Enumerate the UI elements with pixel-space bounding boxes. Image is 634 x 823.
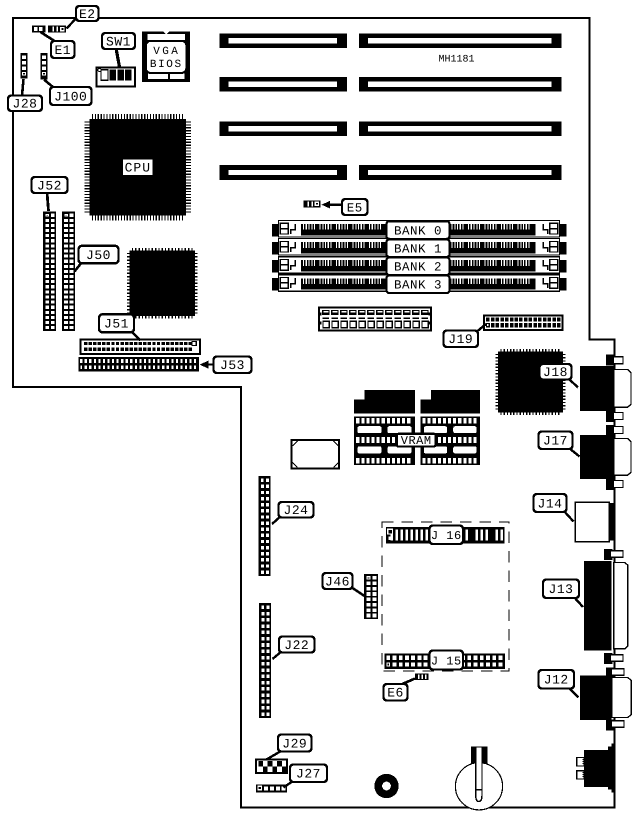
svg-text:BANK 0: BANK 0 (394, 224, 442, 238)
svg-text:J53: J53 (220, 358, 245, 373)
svg-text:E2: E2 (79, 7, 96, 22)
svg-text:E1: E1 (54, 43, 71, 58)
svg-text:J28: J28 (13, 97, 38, 112)
svg-text:J19: J19 (448, 332, 473, 347)
svg-text:J17: J17 (543, 434, 568, 449)
svg-text:J14: J14 (538, 496, 563, 511)
svg-text:J24: J24 (284, 503, 309, 518)
svg-text:J12: J12 (544, 673, 569, 688)
svg-text:J18: J18 (543, 365, 568, 380)
svg-text:CPU: CPU (125, 161, 151, 176)
svg-text:J100: J100 (54, 89, 87, 104)
svg-text:E5: E5 (347, 201, 363, 215)
svg-text:J51: J51 (104, 317, 129, 332)
svg-text:J52: J52 (37, 178, 62, 193)
svg-text:BANK 3: BANK 3 (394, 279, 442, 293)
svg-text:J 15: J 15 (431, 654, 462, 668)
svg-text:MH1181: MH1181 (438, 55, 474, 66)
svg-text:E6: E6 (387, 686, 404, 701)
svg-text:VGA: VGA (153, 46, 180, 58)
svg-text:VRAM: VRAM (401, 434, 432, 448)
svg-text:BANK 1: BANK 1 (394, 242, 442, 256)
svg-text:J50: J50 (86, 248, 111, 263)
svg-text:J46: J46 (325, 574, 350, 589)
svg-text:J13: J13 (549, 582, 574, 597)
svg-text:J29: J29 (282, 736, 307, 751)
svg-text:J22: J22 (284, 638, 309, 653)
svg-text:J27: J27 (296, 767, 321, 782)
svg-text:BANK 2: BANK 2 (394, 261, 442, 275)
svg-text:J 16: J 16 (431, 529, 462, 543)
svg-text:SW1: SW1 (106, 34, 131, 49)
svg-text:BIOS: BIOS (150, 59, 183, 71)
